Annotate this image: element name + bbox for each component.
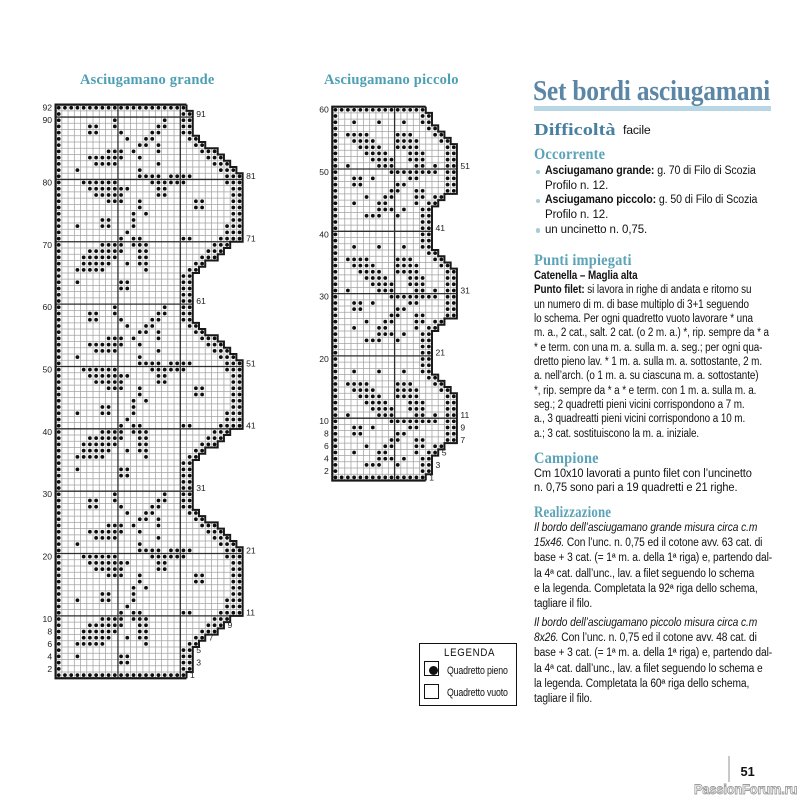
svg-text:7: 7: [460, 435, 465, 445]
svg-text:41: 41: [246, 421, 256, 431]
svg-text:60: 60: [43, 302, 53, 312]
svg-text:2: 2: [324, 466, 329, 476]
svg-text:31: 31: [196, 483, 206, 493]
svg-text:20: 20: [43, 552, 53, 562]
svg-text:11: 11: [460, 410, 469, 420]
svg-text:9: 9: [227, 620, 232, 630]
svg-text:3: 3: [435, 460, 440, 470]
svg-text:80: 80: [43, 177, 53, 187]
svg-text:20: 20: [319, 354, 329, 364]
svg-text:50: 50: [319, 167, 329, 177]
svg-text:10: 10: [319, 416, 329, 426]
svg-text:7: 7: [209, 633, 214, 643]
svg-text:41: 41: [435, 223, 445, 233]
svg-text:10: 10: [43, 614, 53, 624]
svg-text:40: 40: [43, 427, 53, 437]
svg-text:5: 5: [442, 447, 447, 457]
svg-text:50: 50: [43, 364, 53, 374]
svg-text:70: 70: [43, 240, 53, 250]
svg-text:6: 6: [47, 639, 52, 649]
svg-text:81: 81: [246, 171, 256, 181]
svg-text:40: 40: [319, 229, 329, 239]
svg-text:5: 5: [196, 645, 201, 655]
svg-text:21: 21: [246, 545, 256, 555]
svg-text:30: 30: [43, 489, 53, 499]
svg-text:1: 1: [190, 670, 195, 680]
svg-text:92: 92: [43, 103, 53, 113]
svg-text:30: 30: [319, 292, 329, 302]
svg-text:4: 4: [47, 651, 52, 661]
svg-text:3: 3: [196, 658, 201, 668]
svg-text:11: 11: [246, 608, 255, 618]
svg-text:8: 8: [324, 429, 329, 439]
svg-text:60: 60: [319, 105, 329, 115]
svg-text:91: 91: [196, 109, 206, 119]
svg-text:31: 31: [460, 285, 470, 295]
svg-text:61: 61: [196, 296, 206, 306]
svg-text:21: 21: [435, 348, 445, 358]
svg-text:6: 6: [324, 441, 329, 451]
svg-text:51: 51: [246, 358, 256, 368]
svg-text:2: 2: [47, 664, 52, 674]
svg-text:1: 1: [429, 472, 434, 482]
svg-text:90: 90: [43, 115, 53, 125]
svg-text:4: 4: [324, 454, 329, 464]
svg-text:71: 71: [246, 234, 256, 244]
svg-text:8: 8: [47, 626, 52, 636]
svg-text:51: 51: [460, 161, 470, 171]
svg-text:9: 9: [460, 422, 465, 432]
